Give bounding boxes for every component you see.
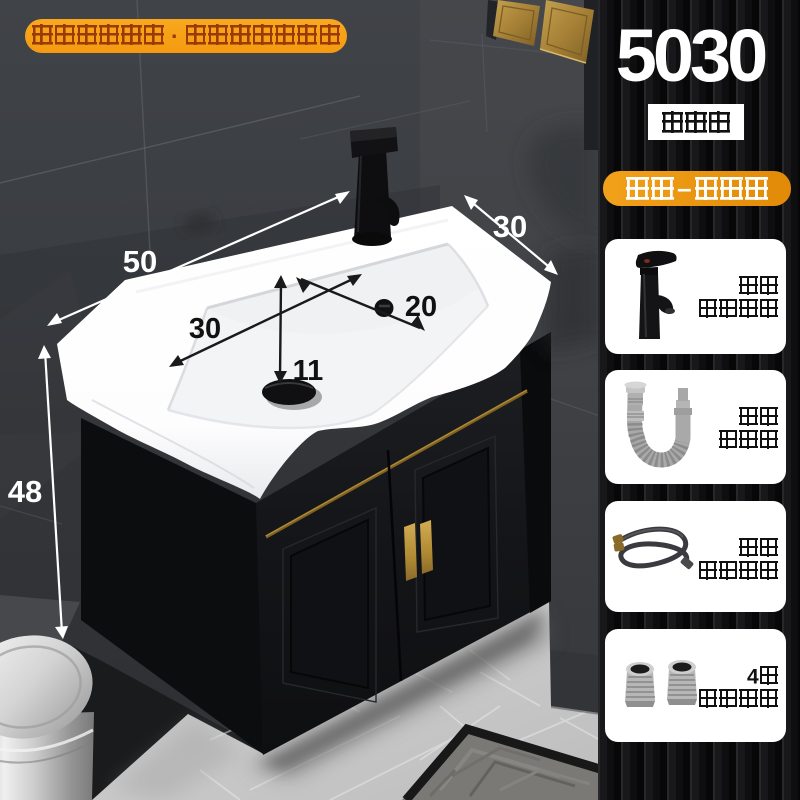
svg-text:50: 50 [123,244,157,279]
svg-text:48: 48 [8,474,42,509]
svg-text:30: 30 [493,209,527,244]
svg-text:20: 20 [405,291,437,323]
svg-text:11: 11 [293,355,324,387]
svg-text:30: 30 [189,313,221,345]
